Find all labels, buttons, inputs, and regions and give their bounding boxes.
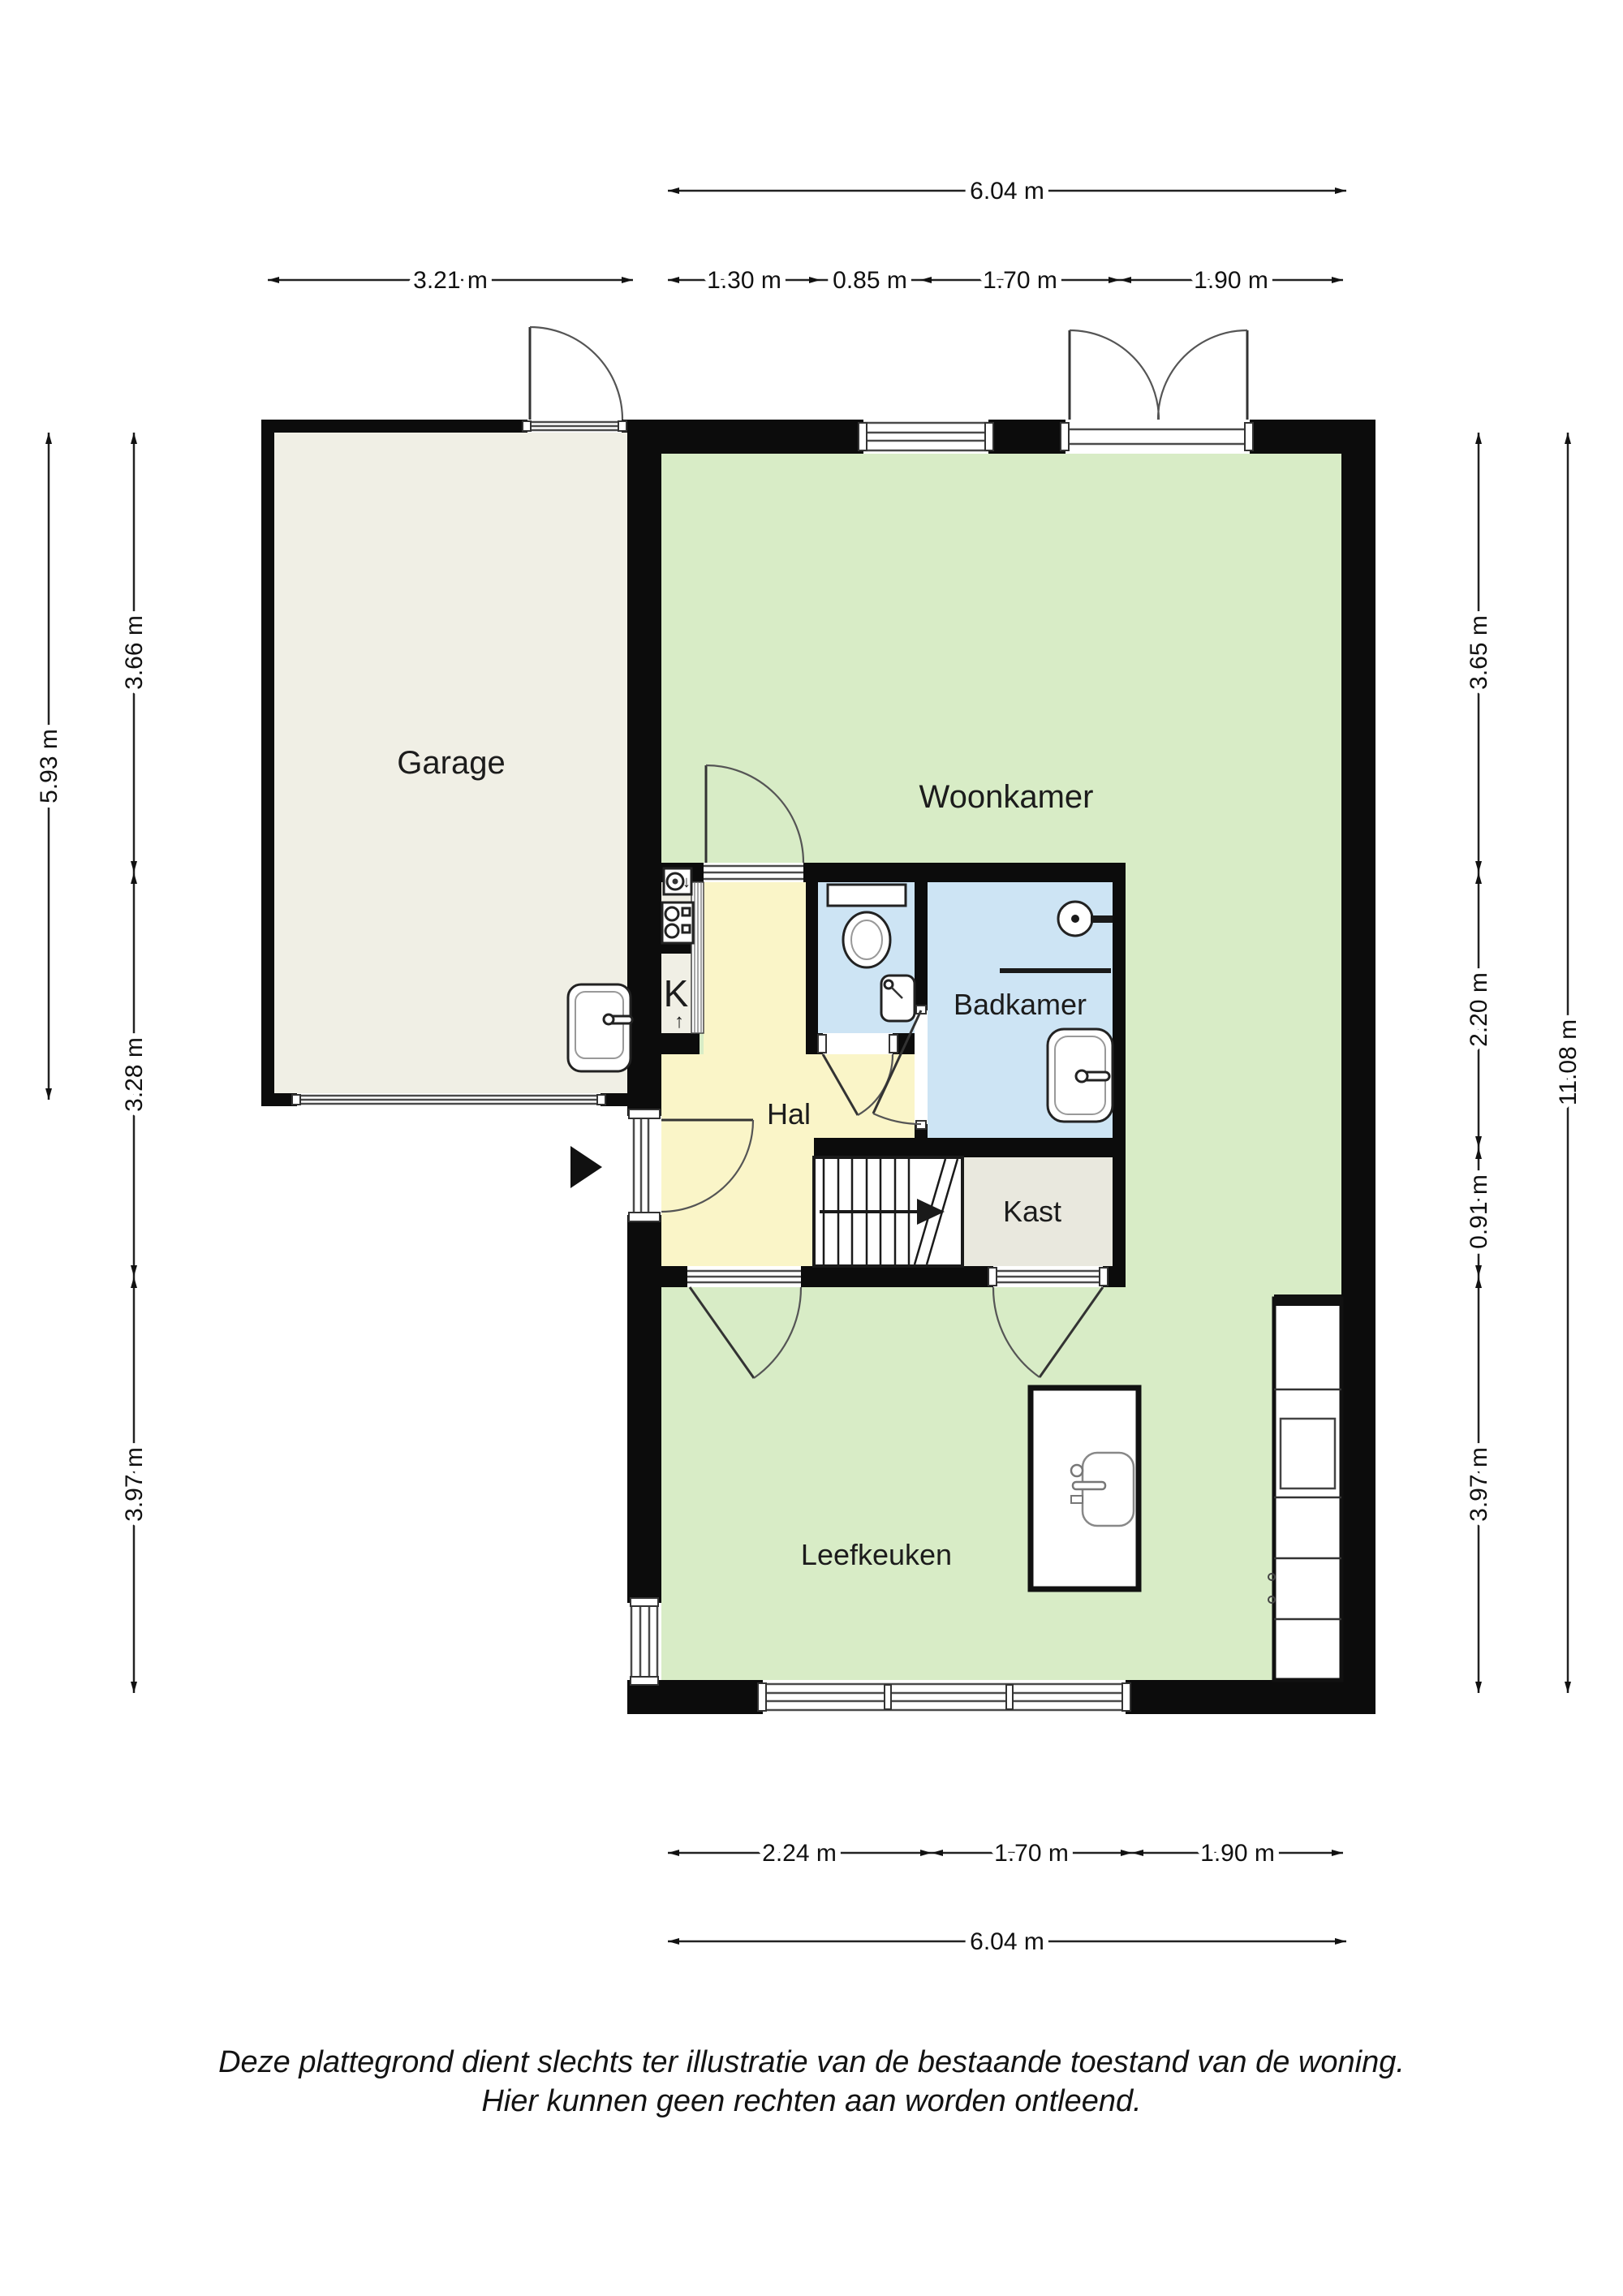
- wall-north-2: [1250, 420, 1375, 454]
- floor-hal-low: [661, 1138, 814, 1266]
- label-garage: Garage: [397, 745, 505, 781]
- wall-garage-left: [261, 420, 274, 1106]
- hal-door-opening: [704, 863, 803, 882]
- label-k-closet: K: [664, 972, 689, 1014]
- svg-text:3.28 m: 3.28 m: [121, 1037, 148, 1112]
- wall-west-mid: [627, 1215, 661, 1603]
- disclaimer-line-1: Deze plattegrond dient slechts ter illus…: [218, 2045, 1405, 2079]
- dim-right-3-65: 3.65 m: [1466, 433, 1492, 872]
- label-leefkeuken: Leefkeuken: [801, 1538, 952, 1571]
- dim-right-3-97: 3.97 m: [1466, 1277, 1492, 1693]
- wall-east: [1341, 420, 1375, 1714]
- svg-text:2.20 m: 2.20 m: [1466, 972, 1492, 1047]
- kast-door-opening: [988, 1266, 1108, 1287]
- svg-text:0.91 m: 0.91 m: [1466, 1174, 1492, 1249]
- wall-south-2: [1126, 1680, 1375, 1714]
- window-woonkamer-top: [859, 420, 993, 454]
- front-door-opening: [627, 1109, 661, 1221]
- dim-bottom-total: 6.04 m: [668, 1928, 1346, 1955]
- wall-hal-bottom-left: [661, 1266, 687, 1287]
- dim-top-0-85: 0.85 m: [820, 267, 920, 294]
- k-closet-arrow-up: ↑: [674, 1010, 684, 1032]
- wall-badkamer-left-upper: [915, 882, 928, 1010]
- badkamer-door-opening: [915, 1006, 928, 1129]
- entrance-arrow-icon: [570, 1146, 602, 1188]
- window-leefkeuken-south: [758, 1680, 1130, 1714]
- wall-stairs-bottom: [801, 1266, 993, 1287]
- kitchen-counter: [1268, 1294, 1341, 1680]
- counter-appliance-icon: [1281, 1419, 1335, 1488]
- toilet-sink-icon: [881, 976, 915, 1021]
- svg-text:1.30 m: 1.30 m: [707, 267, 781, 294]
- kitchen-island: [1031, 1388, 1139, 1589]
- floor-hal-corridor: [704, 882, 806, 1054]
- disclaimer: Deze plattegrond dient slechts ter illus…: [218, 2045, 1405, 2118]
- dim-top-total: 6.04 m: [668, 178, 1346, 205]
- wall-west-upper: [627, 420, 661, 1116]
- dim-left-3-97: 3.97 m: [121, 1277, 148, 1693]
- dim-top-1-30: 1.30 m: [668, 267, 820, 294]
- garage-sink-icon: [568, 984, 632, 1071]
- svg-text:3.66 m: 3.66 m: [121, 615, 148, 690]
- dim-bottom-1-90: 1.90 m: [1132, 1840, 1343, 1867]
- svg-text:11.08 m: 11.08 m: [1555, 1019, 1582, 1105]
- dim-top-1-70: 1.70 m: [920, 267, 1120, 294]
- garage-side-door: [530, 327, 622, 420]
- svg-text:0.85 m: 0.85 m: [833, 267, 907, 294]
- svg-text:3.97 m: 3.97 m: [1466, 1447, 1492, 1522]
- dim-right-0-91: 0.91 m: [1466, 1148, 1492, 1277]
- disclaimer-line-2: Hier kunnen geen rechten aan worden ontl…: [481, 2084, 1141, 2118]
- dim-top-garage: 3.21 m: [268, 267, 633, 294]
- french-door-opening: [1061, 420, 1253, 454]
- wall-north-1: [627, 420, 863, 454]
- svg-text:1.70 m: 1.70 m: [994, 1840, 1069, 1867]
- svg-text:6.04 m: 6.04 m: [970, 1928, 1044, 1955]
- svg-text:1.70 m: 1.70 m: [983, 267, 1057, 294]
- garage-side-door-opening: [523, 420, 626, 433]
- floorplan-page: ↓: [0, 0, 1623, 2296]
- appliance-arrow-down: ↓: [682, 873, 691, 891]
- wall-stairs-top: [814, 1138, 1126, 1157]
- wall-k-bottom: [661, 1033, 700, 1054]
- k-appliance-icons: ↓: [662, 868, 693, 943]
- wall-garage-top: [261, 420, 527, 433]
- svg-text:3.97 m: 3.97 m: [121, 1447, 148, 1522]
- svg-text:6.04 m: 6.04 m: [970, 178, 1044, 205]
- svg-text:2.24 m: 2.24 m: [762, 1840, 837, 1867]
- wall-north-pier: [988, 420, 1065, 454]
- label-hal: Hal: [767, 1097, 811, 1131]
- dim-bottom-2-24: 2.24 m: [668, 1840, 932, 1867]
- dim-left-outer: 5.93 m: [36, 433, 62, 1100]
- dim-top-1-90: 1.90 m: [1120, 267, 1343, 294]
- wall-toilet-left: [806, 882, 818, 1033]
- label-kast: Kast: [1003, 1195, 1061, 1228]
- badkamer-sink-icon: [1048, 1029, 1113, 1122]
- svg-text:3.21 m: 3.21 m: [413, 267, 488, 294]
- dim-left-3-28: 3.28 m: [121, 872, 148, 1277]
- svg-text:1.90 m: 1.90 m: [1194, 267, 1268, 294]
- dim-bottom-1-70: 1.70 m: [932, 1840, 1132, 1867]
- svg-text:5.93 m: 5.93 m: [36, 729, 62, 803]
- french-doors: [1070, 330, 1247, 420]
- dim-right-total: 11.08 m: [1555, 433, 1582, 1693]
- dim-left-3-66: 3.66 m: [121, 433, 148, 872]
- window-leefkeuken-west: [627, 1598, 661, 1685]
- hal-kitchen-door-opening: [687, 1266, 801, 1287]
- floorplan-canvas: ↓: [0, 0, 1623, 2296]
- wall-hal-top-right: [803, 863, 1126, 882]
- svg-text:1.90 m: 1.90 m: [1200, 1840, 1275, 1867]
- floors: [274, 433, 1341, 1680]
- garage-door-opening: [292, 1093, 605, 1106]
- dim-right-2-20: 2.20 m: [1466, 872, 1492, 1148]
- label-woonkamer: Woonkamer: [919, 779, 1094, 815]
- label-badkamer: Badkamer: [954, 988, 1087, 1021]
- wall-badkamer-right: [1113, 882, 1126, 1266]
- svg-text:3.65 m: 3.65 m: [1466, 615, 1492, 690]
- toilet-door-opening: [818, 1033, 898, 1054]
